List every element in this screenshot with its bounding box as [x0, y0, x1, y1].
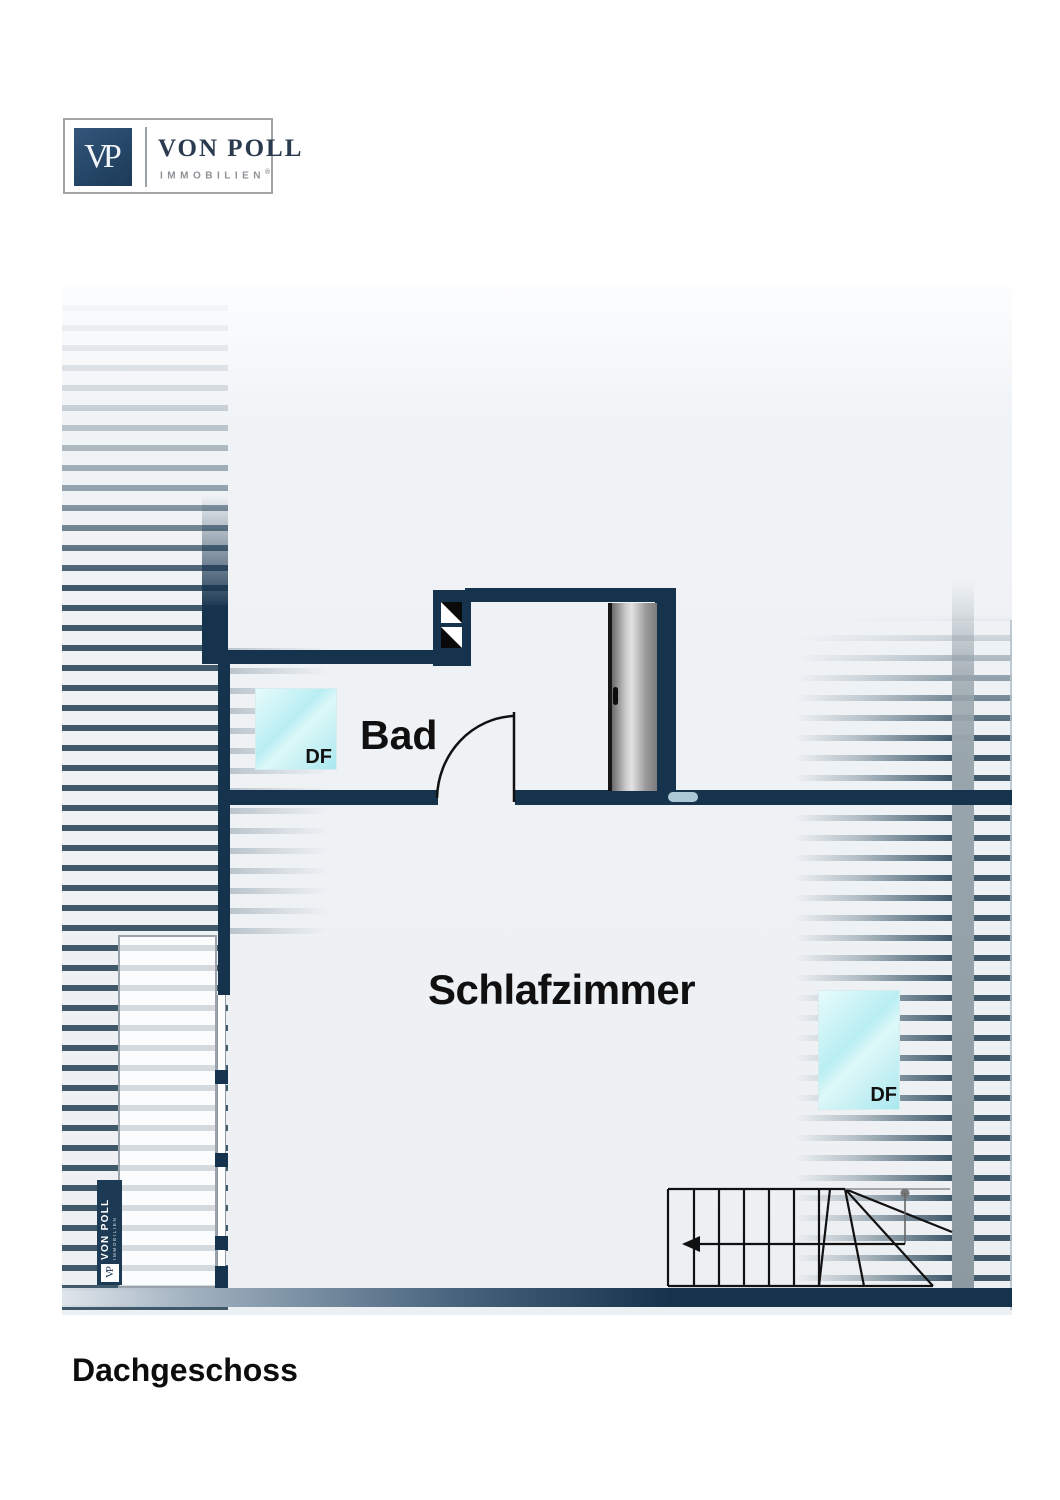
walking-line: [682, 1189, 910, 1253]
watermark-subtitle: IMMOBILIEN: [113, 1198, 118, 1260]
staircase: [668, 1189, 952, 1286]
floor-title: Dachgeschoss: [72, 1352, 298, 1389]
room-label-bedroom: Schlafzimmer: [428, 966, 695, 1014]
door-swing-icon: [437, 712, 514, 802]
floor-plan-page: VP VON POLL IMMOBILIEN® DF DF: [0, 0, 1060, 1500]
watermark-name: VON POLL: [101, 1198, 111, 1260]
room-label-bathroom: Bad: [360, 712, 437, 759]
watermark-inner: VP VON POLL IMMOBILIEN: [97, 1180, 122, 1285]
walking-direction-arrow-icon: [682, 1236, 700, 1252]
von-poll-watermark: VP VON POLL IMMOBILIEN: [97, 1180, 122, 1285]
plan-linework: [0, 0, 1060, 1500]
watermark-vp-icon: VP: [101, 1264, 119, 1282]
